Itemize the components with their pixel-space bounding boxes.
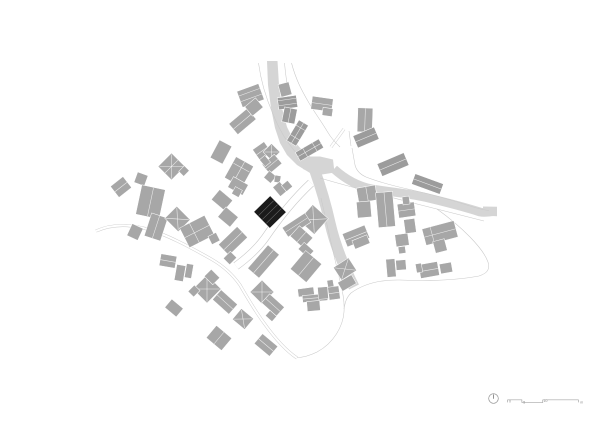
svg-text:0: 0 bbox=[509, 400, 511, 404]
svg-text:10: 10 bbox=[544, 399, 548, 403]
svg-text:m: m bbox=[580, 400, 583, 404]
svg-text:5: 5 bbox=[523, 400, 525, 404]
